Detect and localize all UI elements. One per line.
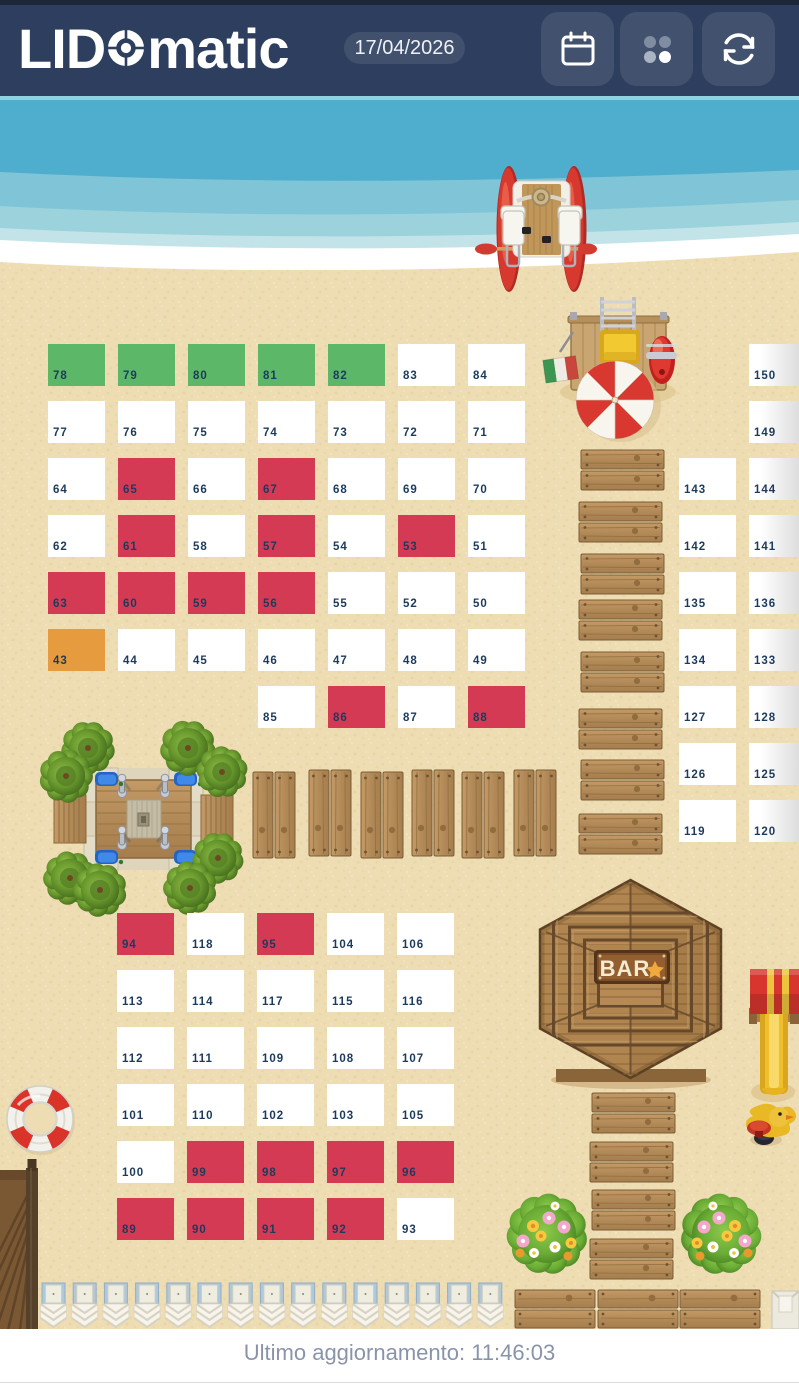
svg-text:BAR: BAR xyxy=(600,956,651,981)
